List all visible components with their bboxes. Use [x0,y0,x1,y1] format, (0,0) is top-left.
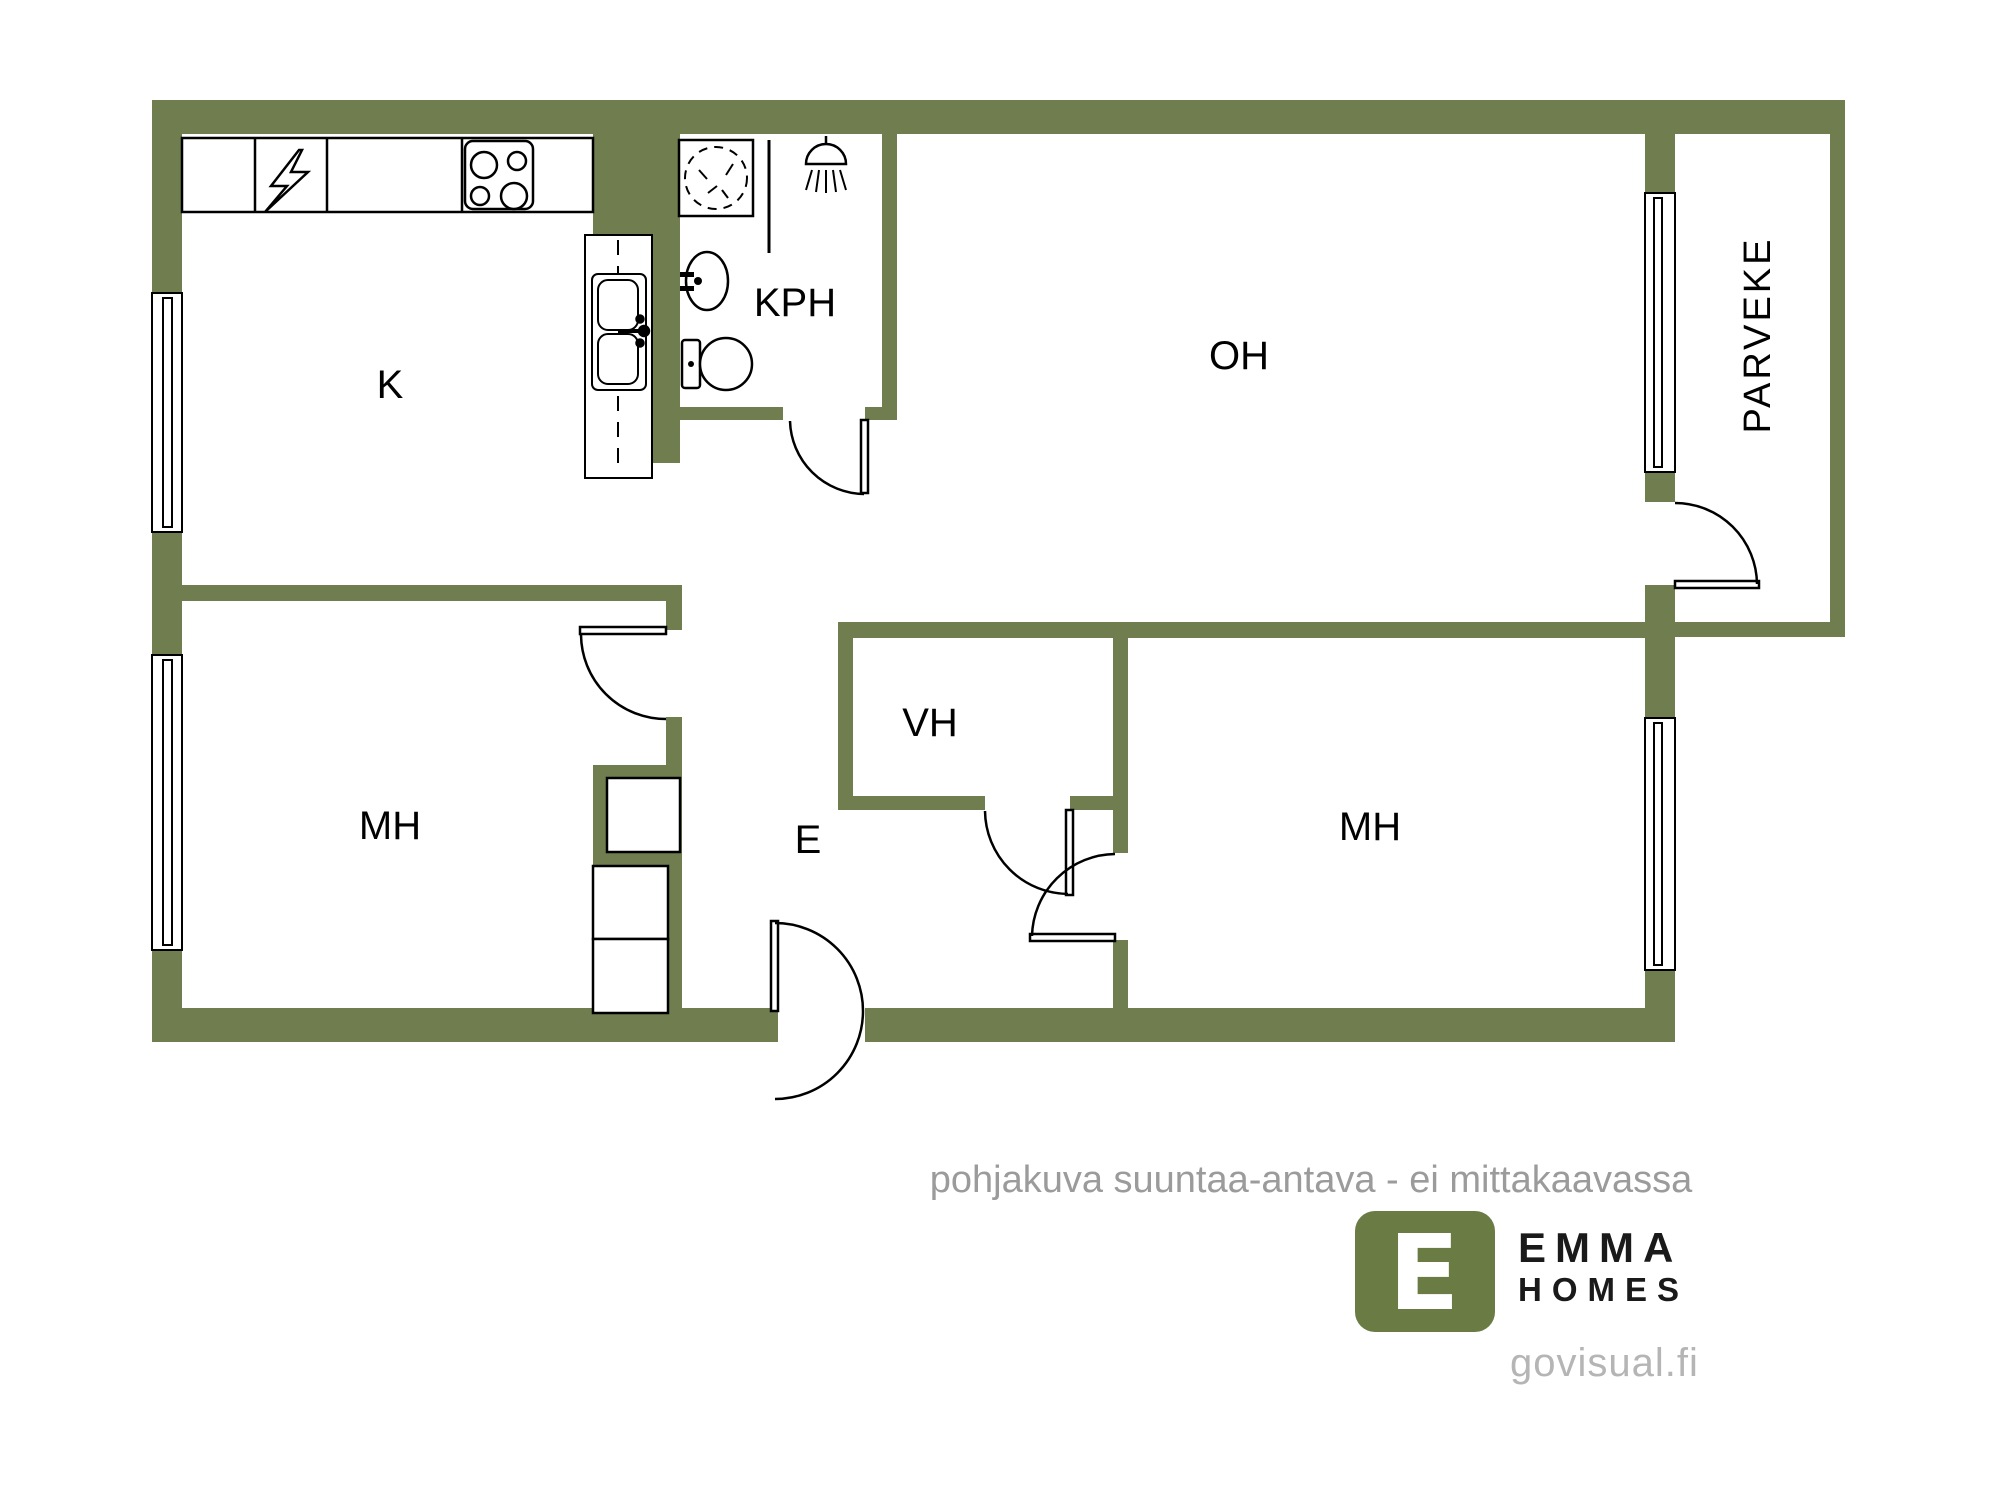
logo-emma-text: EMMA [1518,1224,1682,1271]
entry-door-opening [778,1007,865,1043]
wall-kph-bottom-right [865,407,897,420]
wall-bottom [152,1008,1675,1042]
shower-icon [806,136,846,193]
floor-plan-page: K KPH OH PARVEKE MH VH E MH pohjakuva su… [0,0,2000,1500]
floor-plan-drawing: K KPH OH PARVEKE MH VH E MH pohjakuva su… [0,0,2000,1500]
logo-mark-letter: E [1388,1212,1459,1334]
door-balcony [1675,503,1759,588]
wall-bedroom-right-outer [1645,970,1675,1008]
stove-icon [465,141,533,209]
wall-balcony-right [1830,134,1845,637]
disclaimer-text: pohjakuva suuntaa-antava - ei mittakaava… [930,1159,1693,1201]
window-living-room-balcony [1645,193,1675,472]
door-closet-vh [985,810,1073,895]
toilet-icon [682,338,752,390]
room-label-entry: E [795,818,822,862]
walls [152,100,1845,1042]
wall-hall-left-upper [666,601,682,630]
wall-kitchen-block [593,134,650,235]
wall-closet-cap [593,765,682,778]
door-bathroom [790,420,868,494]
window-bedroom-right [1645,718,1675,970]
wall-hall-bedroom-right-upper [1113,638,1128,853]
door-bedroom-left [580,627,666,719]
wall-kitchen-bedroom-divider [182,585,682,601]
room-label-closet-vh: VH [902,701,958,745]
logo-homes-text: HOMES [1518,1271,1689,1308]
wall-oh-lower-divider [838,622,1645,638]
wall-vh-left [838,638,853,796]
wall-vh-bottom [838,796,985,810]
wall-hall-bedroom-right-lower [1113,940,1128,1008]
washing-machine-icon [679,140,753,216]
windows [152,193,1675,970]
double-sink-icon [592,274,649,390]
doors [580,420,1759,1099]
wall-balcony-divider-top [1645,134,1675,193]
wall-kph-bottom-left [680,407,783,420]
kitchen-fixtures [182,138,652,478]
wardrobe-square [607,778,680,852]
website-text: govisual.fi [1510,1341,1699,1385]
wardrobe-square [593,939,668,1013]
window-kitchen [152,293,182,532]
room-labels: K KPH OH PARVEKE MH VH E MH [359,236,1779,862]
room-label-kitchen: K [377,363,404,407]
wall-kph-left [650,134,680,463]
room-label-bedroom-right: MH [1339,805,1401,849]
wall-top [152,100,1845,134]
wall-closet-mid-strip [593,852,680,866]
door-bedroom-right [1030,854,1115,941]
wall-balcony-divider-mid [1645,472,1675,502]
room-label-balcony: PARVEKE [1737,236,1779,433]
wardrobes [593,778,680,1013]
logo: E EMMA HOMES govisual.fi [1355,1211,1699,1385]
bathroom-fixtures [679,136,846,390]
wall-balcony-bottom [1675,622,1845,637]
sink-icon [680,252,728,310]
wardrobe-square [593,866,668,939]
window-bedroom-left [152,655,182,950]
wall-hall-left-lower [666,717,682,765]
wall-kph-right [882,134,897,420]
room-label-bathroom: KPH [754,281,836,325]
wall-balcony-divider-low [1645,585,1675,718]
room-label-bedroom-left: MH [359,804,421,848]
room-label-living-room: OH [1209,334,1269,378]
